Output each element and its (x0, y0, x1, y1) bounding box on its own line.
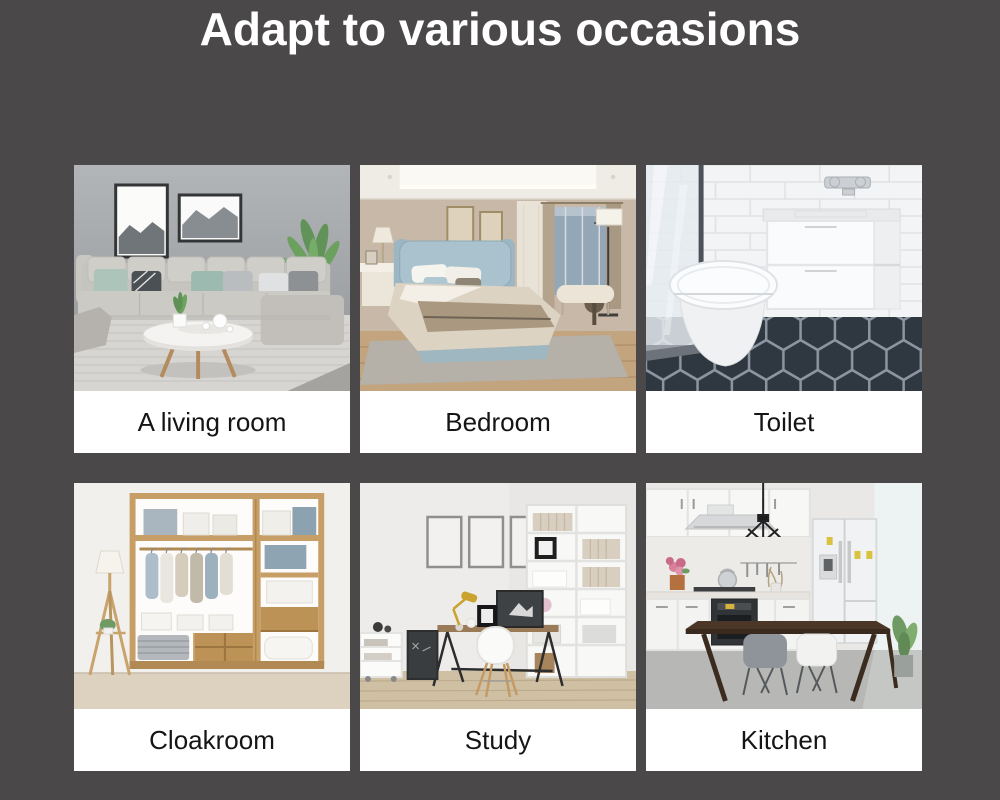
vanity (763, 209, 900, 309)
kettle (718, 570, 736, 590)
occasion-card-toilet: Toilet (646, 165, 922, 453)
study-photo (360, 483, 636, 709)
cloakroom-photo (74, 483, 350, 709)
occasion-label: A living room (74, 391, 350, 453)
cloakroom-illustration (74, 483, 350, 709)
occasion-card-study: Study (360, 483, 636, 771)
occasion-card-living-room: A living room (74, 165, 350, 453)
occasion-card-bedroom: Bedroom (360, 165, 636, 453)
bedroom-illustration (360, 165, 636, 391)
occasion-label: Toilet (646, 391, 922, 453)
occasion-label: Cloakroom (74, 709, 350, 771)
living-room-illustration (74, 165, 350, 391)
occasion-label: Bedroom (360, 391, 636, 453)
living-room-photo (74, 165, 350, 391)
toilet-illustration (646, 165, 922, 391)
page-title: Adapt to various occasions (0, 2, 1000, 56)
chalkboard (408, 631, 438, 679)
occasions-grid: A living room (74, 165, 922, 771)
kitchen-illustration (646, 483, 922, 709)
occasion-card-kitchen: Kitchen (646, 483, 922, 771)
bedroom-photo (360, 165, 636, 391)
kitchen-photo (646, 483, 922, 709)
wardrobe (130, 493, 325, 669)
occasion-card-cloakroom: Cloakroom (74, 483, 350, 771)
occasion-label: Kitchen (646, 709, 922, 771)
study-illustration (360, 483, 636, 709)
toilet-photo (646, 165, 922, 391)
occasion-label: Study (360, 709, 636, 771)
